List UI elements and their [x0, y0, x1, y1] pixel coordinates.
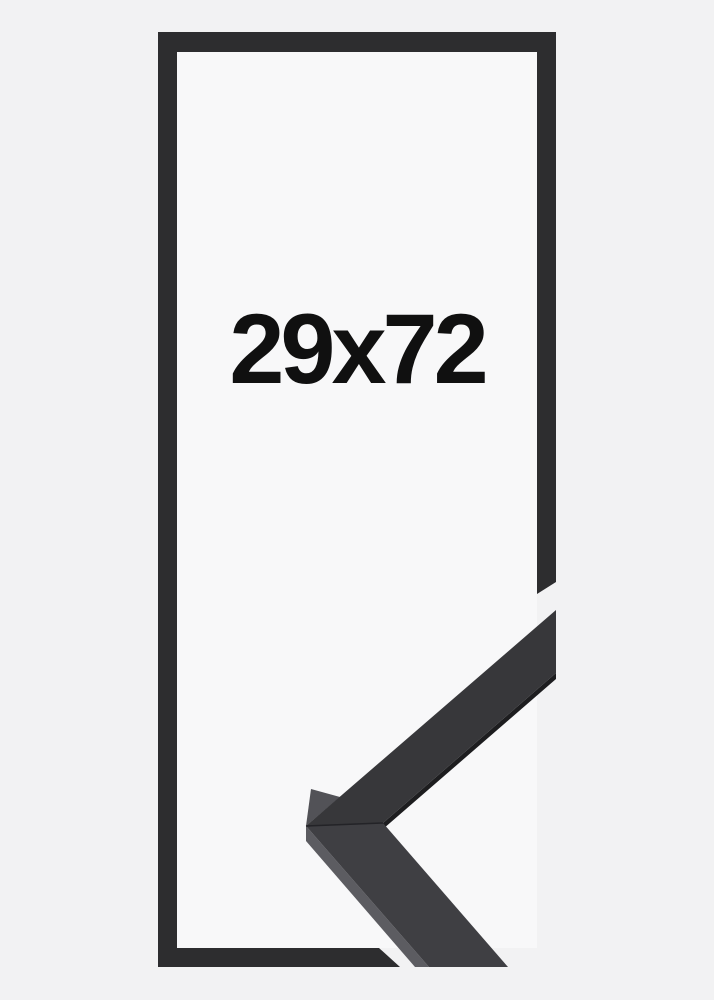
frame-product-image: 29x72 — [0, 0, 714, 1000]
product-image-canvas: 29x72 — [0, 0, 714, 1000]
size-label: 29x72 — [229, 293, 485, 404]
